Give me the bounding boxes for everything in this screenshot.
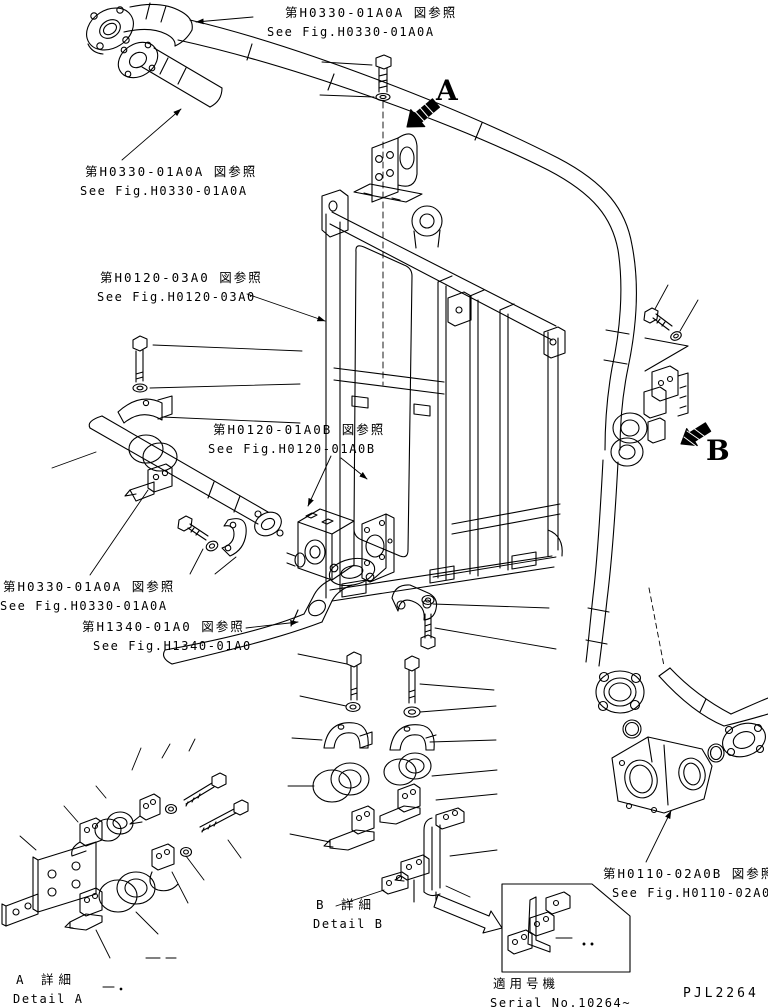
detail-b-pointer-arrow <box>434 895 502 933</box>
ref-label-top-jp: 第H0330-01A0A 図参照 <box>285 3 457 23</box>
ref-label-top-en: See Fig.H0330-01A0A <box>267 23 457 43</box>
ref-label-valve: 第H0120-01A0B 図参照 See Fig.H0120-01A0B <box>208 420 385 459</box>
ref-label-h0110: 第H0110-02A0B 図参照 See Fig.H0110-02A0B <box>603 864 768 903</box>
ref-label-h0110-jp: 第H0110-02A0B 図参照 <box>603 864 768 884</box>
detail-b-label: B 詳細 Detail B <box>313 895 384 934</box>
pump-assembly <box>596 588 768 813</box>
detail-b-parts <box>313 652 464 906</box>
ref-label-upper-left-jp: 第H0330-01A0A 図参照 <box>85 162 257 182</box>
guard-frame <box>322 190 565 601</box>
ref-label-lower-left: 第H0330-01A0A 図参照 See Fig.H0330-01A0A <box>0 577 175 616</box>
ref-label-lower-left-jp: 第H0330-01A0A 図参照 <box>3 577 175 597</box>
detail-a-label: A 詳細 Detail A <box>13 970 84 1008</box>
detail-a-label-jp: A 詳細 <box>16 970 84 990</box>
view-a-arrow <box>407 99 440 127</box>
ref-label-top: 第H0330-01A0A 図参照 See Fig.H0330-01A0A <box>267 3 457 42</box>
detail-a-label-en: Detail A <box>13 990 84 1008</box>
leader-lines <box>20 17 698 958</box>
main-hose <box>178 20 636 666</box>
parts-diagram-page: 第H0330-01A0A 図参照 See Fig.H0330-01A0A 第H0… <box>0 0 768 1008</box>
drawing-code: PJL2264 <box>683 986 759 1001</box>
detail-b-label-en: Detail B <box>313 915 384 935</box>
ref-label-h1340: 第H1340-01A0 図参照 See Fig.H1340-01A0 <box>82 617 252 656</box>
view-b-letter: B <box>706 434 730 467</box>
serial-label: 適用号機 Serial No.10264~ <box>490 974 631 1008</box>
detail-b-label-jp: B 詳細 <box>316 895 384 915</box>
ref-label-h1340-en: See Fig.H1340-01A0 <box>93 637 252 657</box>
clamp-b-assembly <box>611 308 688 466</box>
ref-label-lower-left-en: See Fig.H0330-01A0A <box>0 597 175 617</box>
ref-label-frame-jp: 第H0120-03A0 図参照 <box>100 268 263 288</box>
ref-label-frame: 第H0120-03A0 図参照 See Fig.H0120-03A0 <box>97 268 263 307</box>
ref-label-valve-en: See Fig.H0120-01A0B <box>208 440 385 460</box>
ref-label-h1340-jp: 第H1340-01A0 図参照 <box>82 617 252 637</box>
ref-label-upper-left-en: See Fig.H0330-01A0A <box>80 182 257 202</box>
view-a-letter: A <box>436 74 458 107</box>
serial-label-jp: 適用号機 <box>493 974 631 994</box>
ref-label-h0110-en: See Fig.H0110-02A0B <box>612 884 768 904</box>
diagram-canvas <box>0 0 768 1008</box>
serial-label-en: Serial No.10264~ <box>490 994 631 1008</box>
ref-label-frame-en: See Fig.H0120-03A0 <box>97 288 263 308</box>
ref-label-upper-left: 第H0330-01A0A 図参照 See Fig.H0330-01A0A <box>80 162 257 201</box>
ref-label-valve-jp: 第H0120-01A0B 図参照 <box>213 420 385 440</box>
flange-elbow-top-left <box>79 0 193 59</box>
detail-a-parts <box>2 773 248 990</box>
